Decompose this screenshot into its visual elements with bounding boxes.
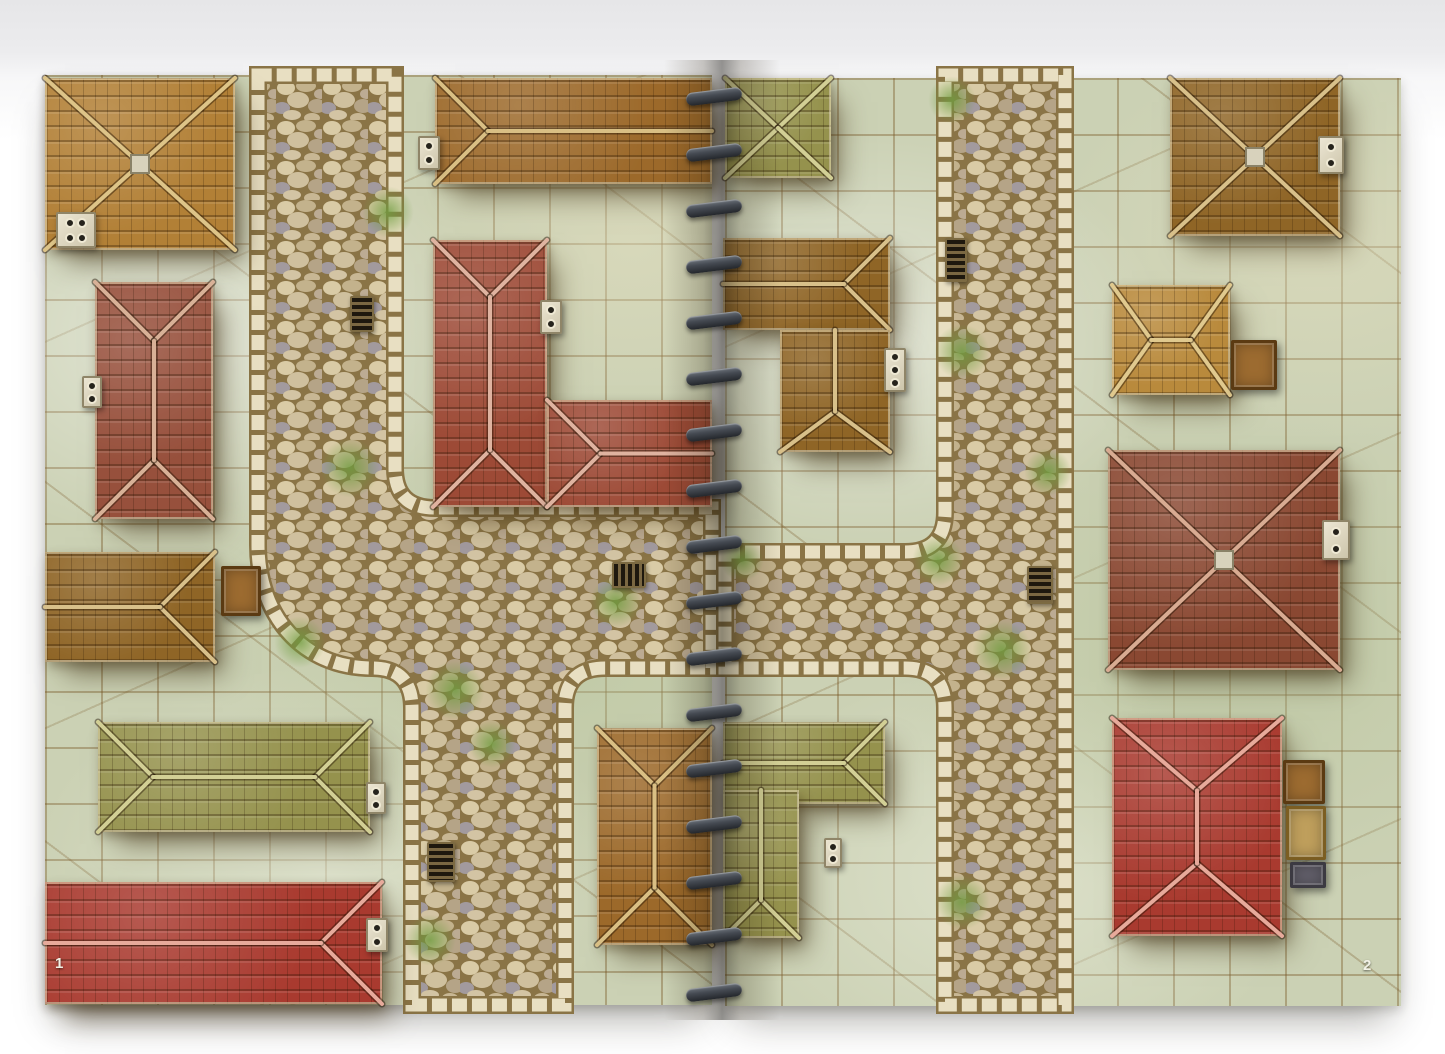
building-left-bottom-red: [45, 882, 382, 1004]
chimney: [1322, 520, 1350, 560]
chimney: [56, 212, 96, 248]
crate: [1283, 760, 1325, 804]
crate: [1286, 806, 1326, 860]
building-right-brown-l-bar: [723, 238, 890, 330]
sewer-grate: [427, 842, 455, 882]
page-number-left: 1: [55, 955, 63, 972]
sewer-grate: [612, 562, 646, 588]
building-left-bottom-brown: [597, 728, 712, 945]
building-left-center-red-tall: [433, 240, 547, 507]
chimney: [884, 348, 906, 392]
building-right-gold-small: [1112, 285, 1230, 395]
photo-backdrop: 1 2: [0, 0, 1445, 1054]
chimney: [366, 782, 386, 814]
building-left-mid-redbrown: [95, 282, 213, 519]
chimney: [824, 838, 842, 868]
building-right-olive-l-stem: [723, 790, 799, 938]
building-right-red-large-hip: [1108, 450, 1340, 670]
crate: [1290, 862, 1326, 888]
chimney: [540, 300, 562, 334]
building-left-top-brown-gable: [435, 78, 712, 184]
chimney: [366, 918, 388, 952]
sewer-grate: [350, 296, 374, 332]
building-left-edge-brown: [45, 552, 215, 662]
chimney: [82, 376, 102, 408]
building-right-brown-l-stem: [780, 330, 890, 452]
building-right-top-brown-hip: [1170, 78, 1340, 236]
page-number-right: 2: [1363, 957, 1371, 974]
crate: [221, 566, 261, 616]
sewer-grate: [1027, 566, 1053, 604]
sewer-grate: [945, 238, 967, 282]
chimney: [418, 136, 440, 170]
crate: [1231, 340, 1277, 390]
building-right-bottom-red-hip: [1112, 718, 1282, 936]
chimney: [1318, 136, 1344, 174]
building-left-olive-long: [98, 722, 370, 832]
